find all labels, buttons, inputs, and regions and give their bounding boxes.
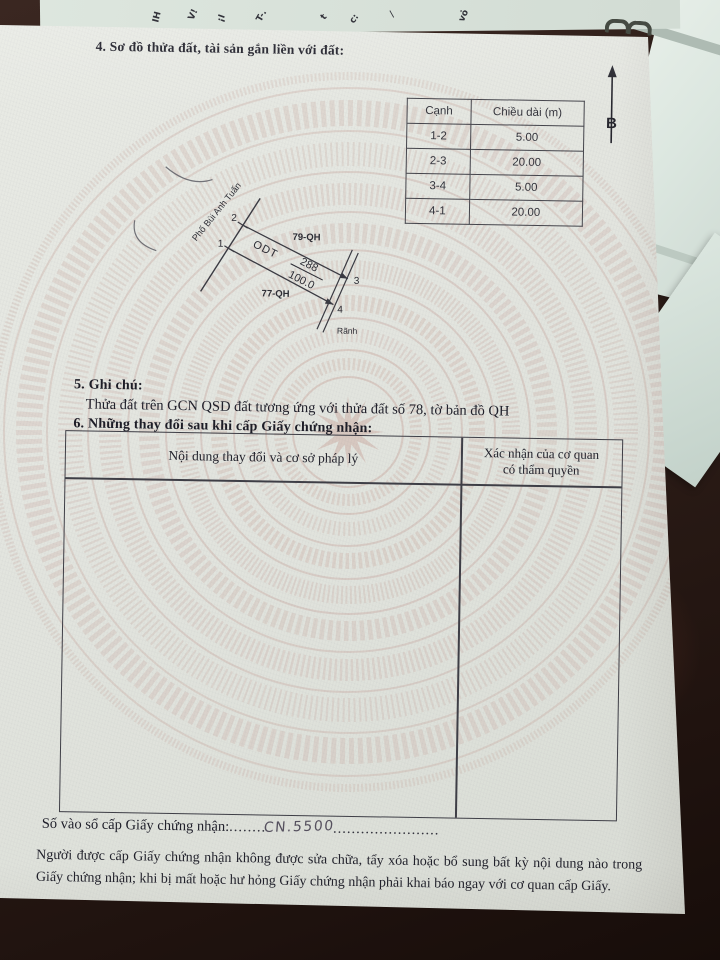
background-text-fragment: ⁄ [388,12,397,18]
background-text-fragment: c: [348,13,361,26]
background-text-fragment: t [319,13,329,23]
paper-edge-shading [0,0,720,960]
background-text-fragment: ¡I [216,13,228,23]
background-text-fragment: T-. [255,8,270,23]
background-text-fragment: IH [151,11,163,24]
certificate-page: 4. Sơ đồ thửa đất, tài sản gắn liền với … [0,0,720,960]
photo-of-land-certificate: IH V! ¡I T-. t c: ⁄ vỏ [0,0,720,960]
punch-mark [627,20,653,36]
background-text-fragment: vỏ [457,8,471,23]
background-text-fragment: V! [187,8,201,22]
